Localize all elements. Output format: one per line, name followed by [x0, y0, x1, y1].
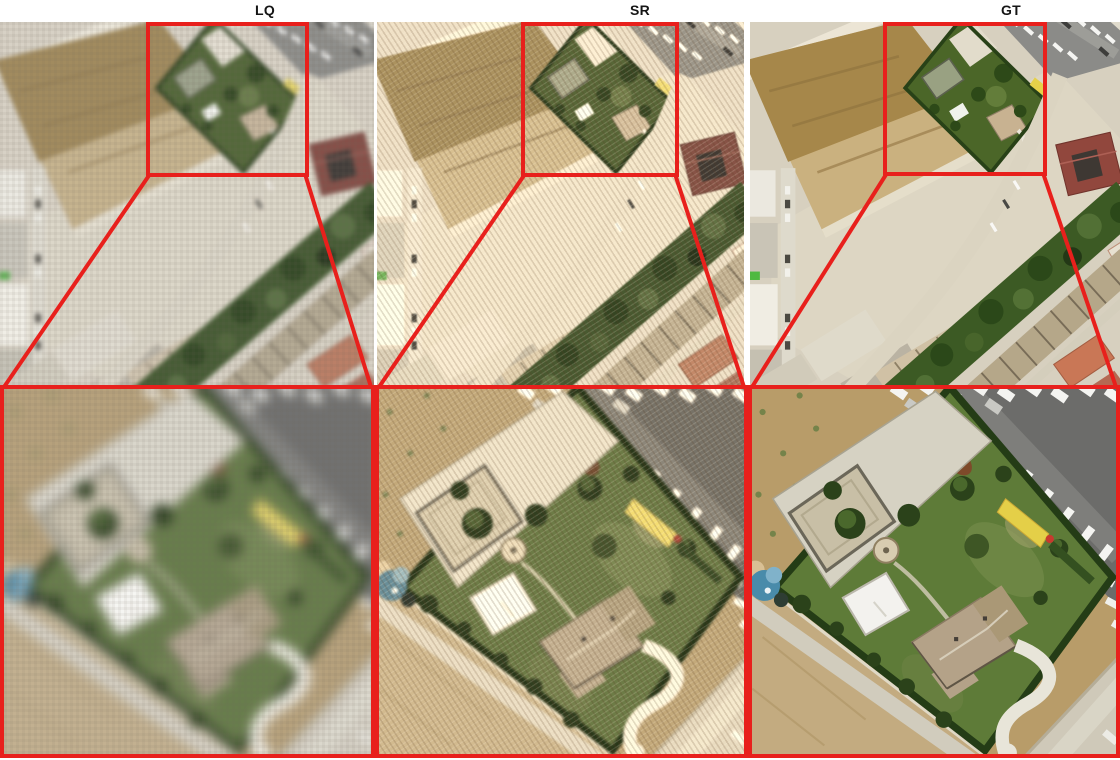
sr-comparison-figure: LQ SR GT — [0, 0, 1120, 760]
lq-top-image — [0, 22, 374, 385]
gt-top-image — [750, 22, 1120, 385]
column-label-sr: SR — [630, 1, 650, 19]
sr-top-image — [377, 22, 744, 385]
column-label-gt: GT — [1001, 1, 1021, 19]
gt-zoom-image — [748, 385, 1120, 758]
lq-zoom-image — [0, 385, 375, 758]
column-label-lq: LQ — [255, 1, 275, 19]
sr-zoom-image — [375, 385, 748, 758]
